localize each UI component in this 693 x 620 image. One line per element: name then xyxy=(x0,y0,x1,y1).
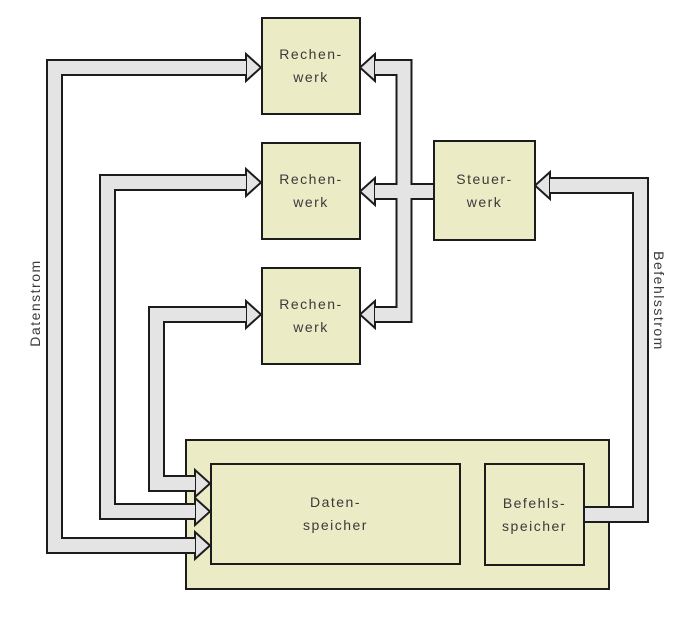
datenspeicher-box: Daten- speicher xyxy=(210,463,461,565)
arrowhead-into-datenspeicher-1 xyxy=(195,470,210,497)
rechenwerk-1-box: Rechen- werk xyxy=(261,17,361,115)
steuerwerk-label-line1: Steuer- xyxy=(456,168,512,191)
arrowhead-into-steuerwerk xyxy=(535,172,550,199)
arrowhead-into-rechenwerk3-left xyxy=(246,301,261,328)
befehlsspeicher-label-line2: speicher xyxy=(502,515,567,538)
rechenwerk-1-label-line2: werk xyxy=(293,66,329,89)
arrowhead-into-rechenwerk1-left xyxy=(246,54,261,81)
datenstrom-label: Datenstrom xyxy=(27,243,43,363)
steuerwerk-label-line2: werk xyxy=(467,191,503,214)
arrowhead-into-rechenwerk2-left xyxy=(246,169,261,196)
arrowhead-into-datenspeicher-2 xyxy=(195,498,210,525)
rechenwerk-3-label-line2: werk xyxy=(293,316,329,339)
rechenwerk-2-box: Rechen- werk xyxy=(261,142,361,240)
rechenwerk-3-box: Rechen- werk xyxy=(261,267,361,365)
rechenwerk-2-label-line2: werk xyxy=(293,191,329,214)
rechenwerk-2-label-line1: Rechen- xyxy=(279,168,342,191)
befehlsspeicher-box: Befehls- speicher xyxy=(484,463,585,566)
steuerwerk-box: Steuer- werk xyxy=(433,140,536,241)
rechenwerk-3-label-line1: Rechen- xyxy=(279,293,342,316)
arrowhead-into-datenspeicher-3 xyxy=(195,532,210,559)
data-track-3-fill xyxy=(157,315,247,484)
befehlsspeicher-label-line1: Befehls- xyxy=(503,492,566,515)
datenspeicher-label-line1: Daten- xyxy=(310,491,361,514)
rechenwerk-1-label-line1: Rechen- xyxy=(279,43,342,66)
data-track-3-outline xyxy=(157,315,247,484)
datenspeicher-label-line2: speicher xyxy=(303,514,368,537)
befehlsstrom-label: Befehlsstrom xyxy=(651,231,667,371)
simd-architecture-diagram: Rechen- werk Rechen- werk Rechen- werk S… xyxy=(0,0,693,620)
arrowhead-into-rechenwerk2-right xyxy=(360,178,375,205)
arrowhead-into-rechenwerk1-right xyxy=(360,54,375,81)
arrowhead-into-rechenwerk3-right xyxy=(360,301,375,328)
